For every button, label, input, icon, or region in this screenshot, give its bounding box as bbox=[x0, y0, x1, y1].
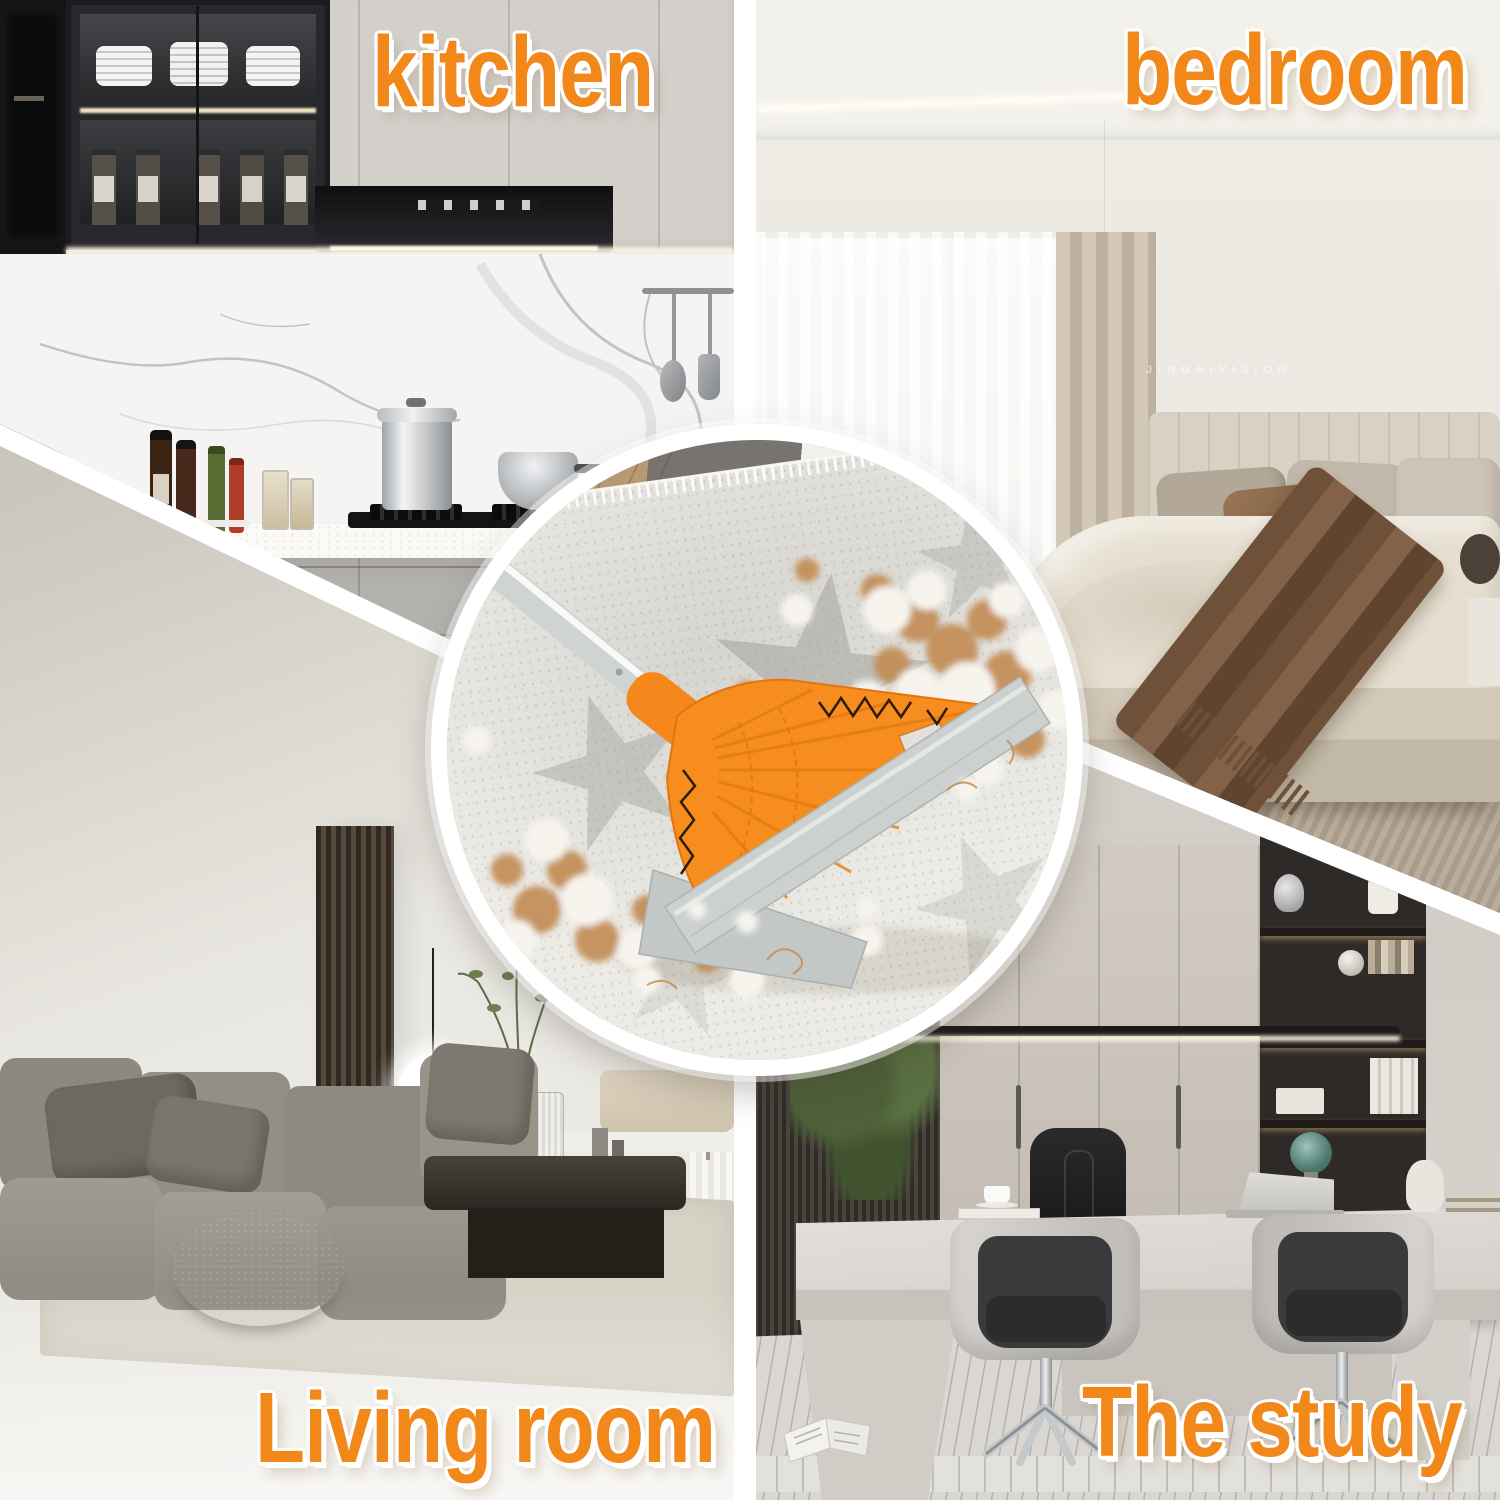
glass-ball-decor bbox=[1338, 950, 1364, 976]
pot-lid bbox=[377, 408, 457, 422]
under-cabinet-glow bbox=[66, 247, 734, 254]
coffee-table-base bbox=[468, 1208, 664, 1278]
photo-watermark: JINGAIVISION bbox=[1146, 364, 1292, 376]
daybed-bench bbox=[600, 1070, 734, 1132]
condiment-tray bbox=[202, 520, 250, 527]
decor-box bbox=[612, 1140, 624, 1156]
guest-chair-right-cushion bbox=[1286, 1290, 1402, 1336]
spice-jar-label bbox=[198, 176, 218, 202]
broom-and-fur bbox=[447, 440, 1067, 1060]
white-book-row bbox=[1370, 1058, 1418, 1114]
round-bolster bbox=[1460, 534, 1500, 584]
spice-jar-label bbox=[242, 176, 262, 202]
book-row bbox=[1368, 940, 1414, 974]
oven-door bbox=[5, 10, 61, 240]
desk-books-right bbox=[1446, 1192, 1500, 1212]
cabinet-mullion bbox=[196, 6, 199, 244]
pendant-cord bbox=[432, 948, 434, 1064]
glass-jar bbox=[290, 478, 314, 530]
spice-jar-label bbox=[286, 176, 306, 202]
plate-stack bbox=[96, 46, 152, 86]
oven-display bbox=[14, 96, 44, 101]
hanging-spoon bbox=[672, 294, 676, 364]
white-box-set bbox=[1276, 1088, 1324, 1114]
hood-controls bbox=[418, 200, 538, 210]
silver-sculpture bbox=[1274, 874, 1304, 912]
hanging-spatula-blade bbox=[698, 354, 720, 400]
open-magazine bbox=[778, 1404, 878, 1466]
hanging-spatula bbox=[708, 294, 712, 358]
coffee-table-top bbox=[424, 1156, 686, 1210]
wardrobe-handle-groove bbox=[1176, 1085, 1181, 1149]
bearbrick-figure bbox=[1368, 874, 1398, 914]
plate-stack bbox=[246, 46, 300, 86]
astronaut-figurine bbox=[1406, 1160, 1444, 1212]
sofa-pillow bbox=[144, 1093, 272, 1196]
shelf-board bbox=[1260, 1120, 1426, 1128]
broom-handle bbox=[467, 540, 655, 698]
decor-box bbox=[592, 1128, 608, 1156]
glass-jar bbox=[262, 470, 289, 530]
sofa-seat-module bbox=[0, 1178, 162, 1300]
range-hood bbox=[315, 186, 613, 252]
hanging-spoon-bowl bbox=[660, 360, 686, 402]
carpet-closeup-inset bbox=[431, 424, 1083, 1076]
laptop-screen bbox=[1238, 1172, 1334, 1214]
living-room-label: Living room bbox=[255, 1378, 715, 1478]
utensil-rail bbox=[642, 288, 734, 294]
study-label: The study bbox=[1082, 1372, 1462, 1472]
shelf-board bbox=[1260, 1040, 1426, 1048]
shelf-board bbox=[1260, 928, 1426, 936]
product-collage: kitchen JINGAIVISION bedroom bbox=[0, 0, 1500, 1500]
stock-pot bbox=[382, 420, 452, 510]
kitchen-label: kitchen bbox=[372, 22, 653, 122]
oil-bottle-label bbox=[153, 474, 169, 504]
pot-lid-knob bbox=[406, 398, 426, 407]
globe bbox=[1290, 1132, 1332, 1174]
wardrobe-handle-groove bbox=[1016, 1085, 1021, 1149]
spice-jar-label bbox=[94, 176, 114, 202]
plate-stack bbox=[170, 42, 228, 86]
bedroom-label: bedroom bbox=[1122, 20, 1467, 120]
window-ledge bbox=[560, 1132, 734, 1152]
guest-chair-left-cushion bbox=[986, 1296, 1106, 1342]
nightstand bbox=[1468, 598, 1500, 686]
spice-jar-label bbox=[138, 176, 158, 202]
soy-bottle bbox=[176, 440, 196, 535]
